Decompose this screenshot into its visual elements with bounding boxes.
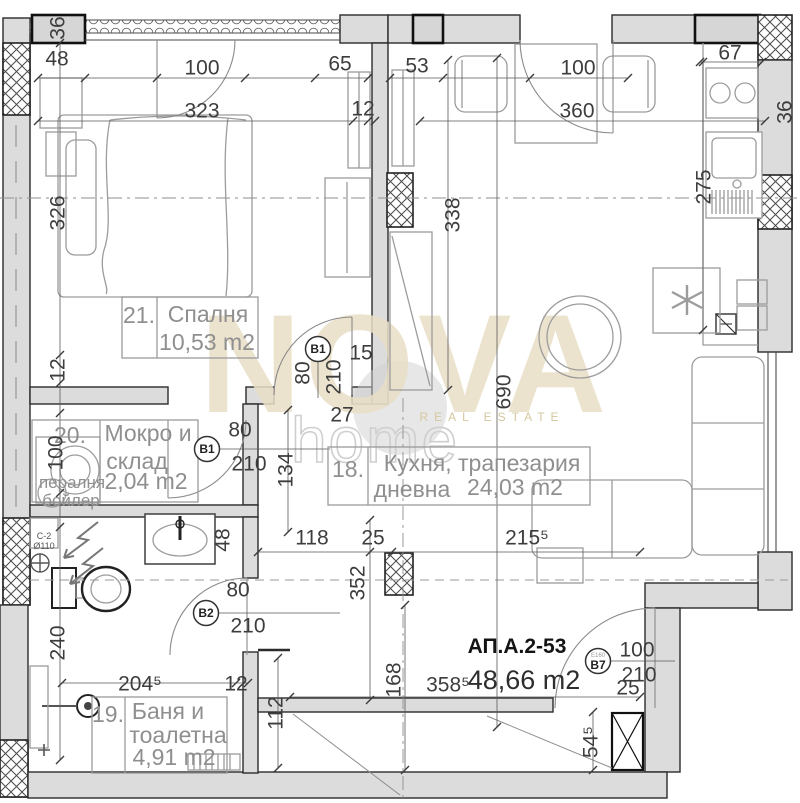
door-marker-b1: B1 bbox=[195, 437, 220, 462]
dimension-label: 168 bbox=[382, 662, 405, 697]
dimension-label: 53 bbox=[405, 54, 428, 77]
door-marker-b2: B2 bbox=[194, 601, 219, 626]
dimension-label: 118 bbox=[295, 526, 328, 549]
dimension-label: 80 bbox=[228, 418, 251, 441]
room-area: 4,91 m2 bbox=[132, 744, 215, 770]
watermark-tagline: REAL ESTATE bbox=[419, 410, 564, 424]
nightstand bbox=[40, 78, 82, 128]
dimension-label: 48 bbox=[211, 528, 234, 551]
equipment-label: пералня bbox=[39, 473, 105, 492]
apartment-area: 48,66 m2 bbox=[468, 665, 581, 695]
burner bbox=[710, 83, 730, 103]
chair bbox=[455, 56, 507, 112]
room-area: 2,04 m2 bbox=[104, 468, 187, 494]
masonry-column bbox=[3, 43, 30, 115]
dimension-label: 215⁵ bbox=[505, 526, 549, 549]
shower-drain bbox=[30, 666, 99, 756]
dimension-label: 100 bbox=[560, 56, 595, 79]
dimension-label: 25 bbox=[616, 676, 639, 699]
plant-icon bbox=[672, 285, 702, 315]
radiator bbox=[392, 70, 414, 166]
dimension-label: 15 bbox=[349, 341, 372, 364]
room-area: 10,53 m2 bbox=[159, 329, 255, 355]
dimension-label: 12 bbox=[351, 97, 374, 120]
masonry-column bbox=[0, 740, 28, 797]
masonry-column bbox=[758, 15, 792, 60]
dimension-label: 134 bbox=[274, 452, 297, 487]
room-area: 24,03 m2 bbox=[467, 474, 563, 500]
stove bbox=[706, 68, 758, 118]
room-name: Баня и bbox=[132, 698, 204, 724]
chair bbox=[603, 56, 655, 112]
dimension-label: 67 bbox=[718, 41, 741, 64]
dimension-label: 323 bbox=[184, 99, 219, 122]
burner bbox=[735, 83, 755, 103]
coffee-table bbox=[537, 548, 583, 583]
dimension-label: 690 bbox=[492, 374, 515, 409]
room-name-2: дневна bbox=[374, 476, 451, 502]
dimension-label: 275 bbox=[692, 169, 715, 204]
dimension-label: 360 bbox=[559, 99, 594, 122]
equipment-label: бойлер bbox=[42, 491, 100, 510]
dimension-label: 352 bbox=[346, 565, 369, 600]
pipe-label: Ø110 bbox=[33, 541, 54, 551]
apartment-code: АП.А.2-53 bbox=[468, 635, 567, 658]
door-marker-label: B1 bbox=[310, 342, 326, 356]
dimension-label: 204⁵ bbox=[118, 672, 162, 695]
room-name: Кухня, трапезария bbox=[384, 450, 581, 476]
dimension-label: 36 bbox=[773, 100, 796, 123]
floor-plan-page: NOVA home REAL ESTATE bbox=[0, 0, 800, 803]
dimension-label: 80 bbox=[291, 361, 314, 384]
bath-sink bbox=[145, 514, 215, 564]
masonry-column bbox=[385, 553, 413, 595]
room-number: 21. bbox=[123, 302, 155, 328]
room-name: Спалня bbox=[168, 301, 248, 327]
door-marker-label: B1 bbox=[199, 442, 215, 456]
bed bbox=[58, 115, 252, 297]
dimension-label: 100 bbox=[44, 435, 67, 470]
dimension-label: 80 bbox=[226, 578, 249, 601]
room-number: 19. bbox=[92, 701, 124, 727]
apartment-label: АП.А.2-53 48,66 m2 bbox=[468, 635, 581, 695]
wardrobe bbox=[325, 178, 370, 277]
dimension-label: 240 bbox=[46, 625, 69, 660]
dimension-label: 210 bbox=[230, 614, 265, 637]
dimension-label: 25 bbox=[361, 526, 384, 549]
dimension-label: 112 bbox=[264, 696, 287, 729]
toilet bbox=[52, 567, 130, 611]
dimension-label: 358⁵ bbox=[426, 673, 470, 696]
floor-plan-drawing: NOVA home REAL ESTATE bbox=[0, 0, 800, 803]
dimension-label: 65 bbox=[328, 52, 351, 75]
dimension-label: 12 bbox=[46, 358, 69, 381]
pipe-label: С-2 bbox=[37, 531, 52, 541]
dimension-label: 338 bbox=[441, 197, 464, 232]
dimension-label: 54⁵ bbox=[579, 726, 602, 758]
door-marker-label: B7 bbox=[590, 658, 606, 672]
room-label-bathroom: 19. Баня и тоалетна 4,91 m2 bbox=[92, 697, 227, 773]
dimension-label: 100 bbox=[619, 638, 654, 661]
masonry-column bbox=[758, 175, 792, 229]
drain-symbol bbox=[31, 554, 49, 572]
room-number: 18. bbox=[332, 456, 364, 482]
masonry-column bbox=[387, 173, 413, 227]
dimension-label: 210 bbox=[231, 452, 266, 475]
dimension-label: 27 bbox=[330, 403, 353, 426]
nightstand bbox=[46, 132, 76, 176]
dimension-label: 210 bbox=[322, 359, 345, 394]
door-marker-b7: Е160B7 bbox=[586, 649, 611, 674]
side-table-plant bbox=[653, 268, 720, 333]
door-marker-label: B2 bbox=[198, 606, 214, 620]
dimension-label: 100 bbox=[184, 56, 219, 79]
masonry-column bbox=[3, 518, 30, 605]
dimension-label: 326 bbox=[46, 195, 69, 230]
room-name: Мокро и bbox=[104, 420, 191, 446]
dimension-label: 12 bbox=[224, 672, 247, 695]
dimension-label: 48 bbox=[45, 47, 68, 70]
door-marker-b1: B1 bbox=[306, 337, 331, 362]
dimension-label: 36 bbox=[46, 16, 69, 39]
pillow bbox=[66, 140, 96, 255]
